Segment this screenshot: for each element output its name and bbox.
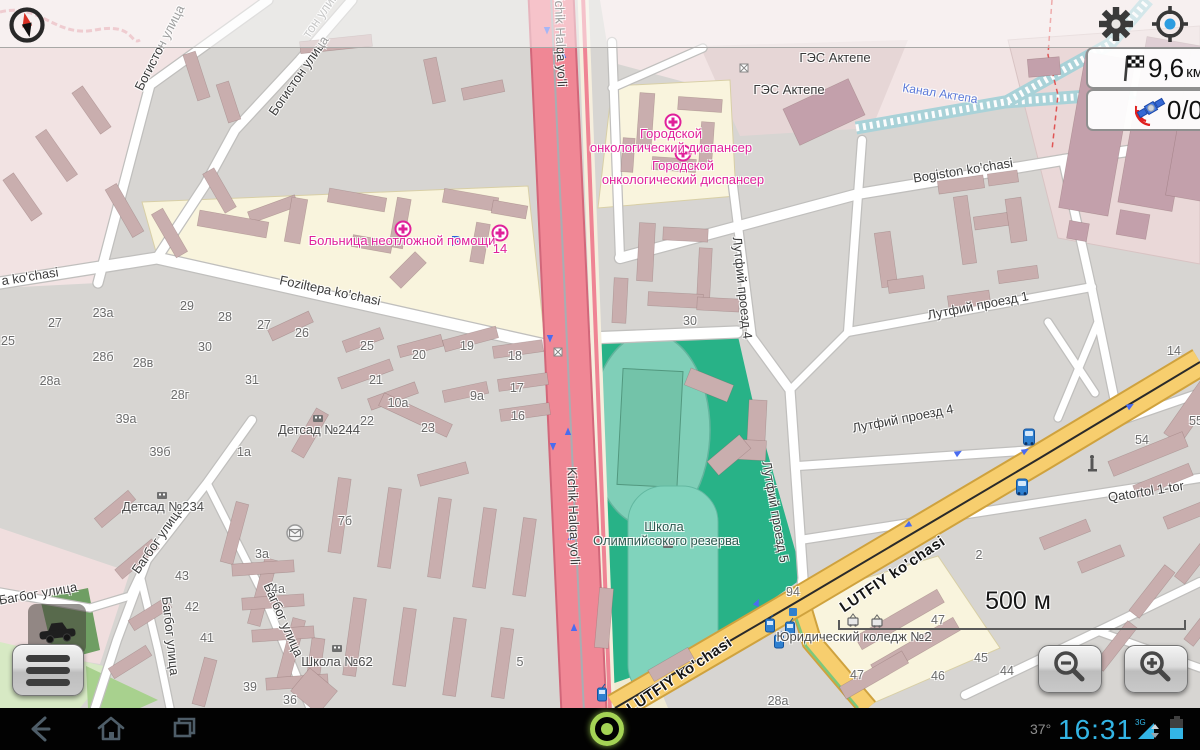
zoom-in-button[interactable]	[1124, 645, 1188, 693]
menu-button[interactable]	[12, 644, 84, 696]
magnifier-minus-icon	[1050, 648, 1090, 688]
recent-apps-icon	[170, 714, 200, 744]
back-arrow-icon	[24, 714, 54, 744]
gps-status-panel[interactable]: 0/0	[1086, 89, 1200, 131]
back-button[interactable]	[24, 714, 54, 744]
top-strip	[0, 0, 1200, 48]
home-icon	[96, 714, 126, 744]
crosshair-gps-icon	[1150, 4, 1190, 44]
map-scale-line	[838, 620, 1186, 630]
distance-value: 9,6	[1148, 53, 1184, 84]
car-icon	[35, 614, 79, 644]
gear-icon	[1096, 4, 1136, 44]
map-scale-label: 500 м	[968, 587, 1068, 616]
destination-distance-panel[interactable]: 9,6 км	[1086, 47, 1200, 89]
compass-button[interactable]	[6, 4, 48, 46]
checkered-flag-icon	[1122, 53, 1148, 83]
zoom-out-button[interactable]	[1038, 645, 1102, 693]
locate-button[interactable]	[1150, 4, 1190, 44]
battery-icon	[1170, 719, 1183, 739]
satellite-icon	[1135, 94, 1167, 126]
home-button[interactable]	[96, 714, 126, 744]
screen-record-indicator[interactable]	[590, 712, 624, 746]
magnifier-plus-icon	[1136, 648, 1176, 688]
recent-apps-button[interactable]	[170, 714, 200, 744]
distance-unit: км	[1186, 64, 1200, 81]
status-clock: 16:31	[1058, 714, 1133, 746]
temperature-indicator: 37°	[1030, 721, 1051, 737]
system-bar: 37° 16:31 3G	[0, 708, 1200, 750]
compass-north-icon	[6, 4, 48, 46]
osmand-screen: P Богистон улицаБогистон улицатон улицаa…	[0, 0, 1200, 750]
hamburger-menu-icon	[13, 655, 83, 686]
svg-text:P: P	[451, 233, 461, 250]
settings-button[interactable]	[1096, 4, 1136, 44]
svg-text:3G: 3G	[1135, 718, 1146, 727]
map-canvas[interactable]: P Богистон улицаБогистон улицатон улицаa…	[0, 0, 1200, 708]
satellite-count: 0/0	[1167, 95, 1200, 126]
signal-3g-icon: 3G	[1134, 717, 1162, 741]
